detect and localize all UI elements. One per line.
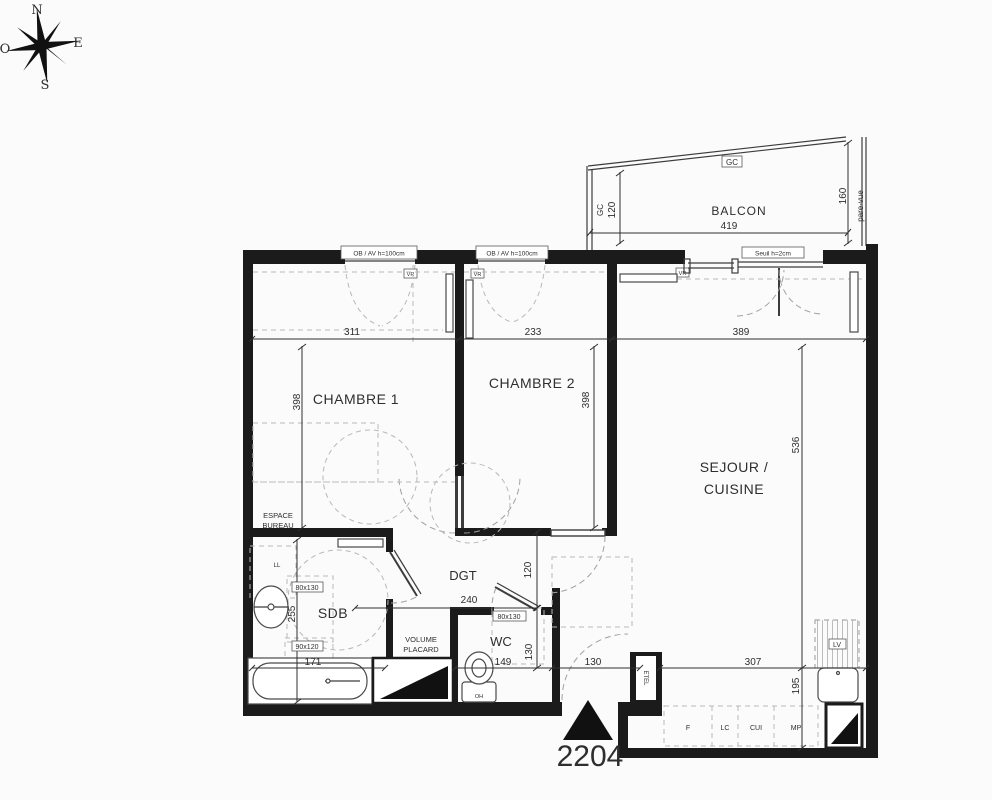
room-closet-label-line1: VOLUME: [405, 635, 437, 644]
entrance-marker: 2204: [557, 700, 624, 773]
cooker-label: CUI: [750, 725, 762, 732]
floor-plan-drawing: N S E O GC GC 120 BALCON 419 160 pare-vu…: [0, 0, 992, 800]
dim-wc-depth: 130: [524, 643, 535, 660]
compass-north-label: N: [31, 3, 42, 18]
duct-label: ETEL: [642, 670, 648, 686]
kitchen-appliance-row: F LC CUI MP: [664, 706, 818, 746]
radiator-bedroom1: [446, 274, 453, 332]
clearance-bath-b-label: 90x120: [296, 644, 319, 651]
compass-rose-icon: N S E O: [0, 3, 85, 93]
window-label-2: OB / AV h=100cm: [486, 251, 537, 258]
compass-west-label: O: [0, 42, 10, 57]
room-hallway-label: DGT: [449, 568, 477, 583]
dim-ch2-width: 233: [525, 327, 542, 338]
dim-hall-width: 120: [523, 561, 534, 578]
dishwasher-label: LV: [833, 642, 841, 649]
balcony-gc-left-label: GC: [596, 204, 605, 216]
unit-number-label: 2204: [557, 740, 624, 773]
toilet-icon: OH: [462, 652, 496, 702]
washing-machine-label: LL: [274, 563, 281, 569]
kitchen-sink-unit: LV: [815, 620, 862, 748]
window-label-1: OB / AV h=100cm: [353, 251, 404, 258]
room-office-label-line2: BUREAU: [262, 521, 293, 530]
dim-bath-depth: 255: [287, 605, 298, 622]
toilet-mark-label: OH: [475, 694, 483, 700]
balcony-width-dim: 419: [721, 221, 738, 232]
balcony-label: BALCON: [711, 204, 766, 218]
dim-entry-width: 130: [585, 657, 602, 668]
threshold-label: Seuil h=2cm: [755, 251, 791, 258]
dim-kitchen-width: 307: [745, 657, 762, 668]
dim-ch2-depth: 398: [581, 391, 592, 408]
clearance-bath-a-label: 80x130: [296, 585, 319, 592]
shutter-label-2: VR: [474, 272, 482, 278]
clearance-wc-label: 80x130: [498, 614, 521, 621]
plan-labels: 311 233 389 398 398 536 195 CHAMBRE 1 CH…: [262, 327, 802, 694]
dim-living-width: 389: [733, 327, 750, 338]
dim-ch1-width: 311: [344, 327, 360, 338]
dim-living-depth: 536: [791, 436, 802, 453]
dim-hall-length: 240: [461, 595, 478, 606]
radiator-living: [620, 274, 677, 282]
room-bathroom-label: SDB: [318, 605, 348, 621]
room-toilet-label: WC: [490, 634, 512, 649]
room-bedroom1-label: CHAMBRE 1: [313, 391, 399, 407]
balcony-screen-label: pare-vue: [856, 190, 865, 222]
floor-plan-page: N S E O GC GC 120 BALCON 419 160 pare-vu…: [0, 0, 992, 800]
balcony-depth-left-dim: 120: [607, 201, 618, 218]
radiator-bedroom2: [466, 280, 473, 338]
washbasin-icon: [254, 586, 288, 628]
room-office-label-line1: ESPACE: [263, 511, 293, 520]
closet-box: [373, 658, 453, 703]
radiator-living-right: [850, 272, 858, 332]
shutter-label-3: VR: [679, 271, 687, 277]
dim-wc-width: 149: [495, 657, 512, 668]
mp-label: MP: [791, 725, 802, 732]
dim-kitchen-depth: 195: [791, 677, 802, 694]
room-living-label-line2: CUISINE: [704, 481, 764, 497]
room-bedroom2-label: CHAMBRE 2: [489, 375, 575, 391]
room-living-label-line1: SEJOUR /: [700, 459, 769, 475]
lc-label: LC: [721, 725, 730, 732]
balcony-gc-top-label: GC: [726, 158, 738, 167]
dim-bath-width: 171: [305, 657, 322, 668]
balcony-depth-right-dim: 160: [838, 187, 849, 204]
radiator-bathroom: [338, 539, 383, 547]
technical-duct: ETEL: [630, 652, 662, 704]
balcony-outline: GC GC 120 BALCON 419 160 pare-vue: [587, 137, 866, 250]
entrance-triangle-icon: [563, 700, 613, 740]
fridge-label: F: [686, 725, 690, 732]
dim-ch1-depth: 398: [292, 393, 303, 410]
compass-south-label: S: [41, 78, 50, 93]
room-closet-label-line2: PLACARD: [403, 645, 439, 654]
compass-east-label: E: [73, 36, 83, 51]
